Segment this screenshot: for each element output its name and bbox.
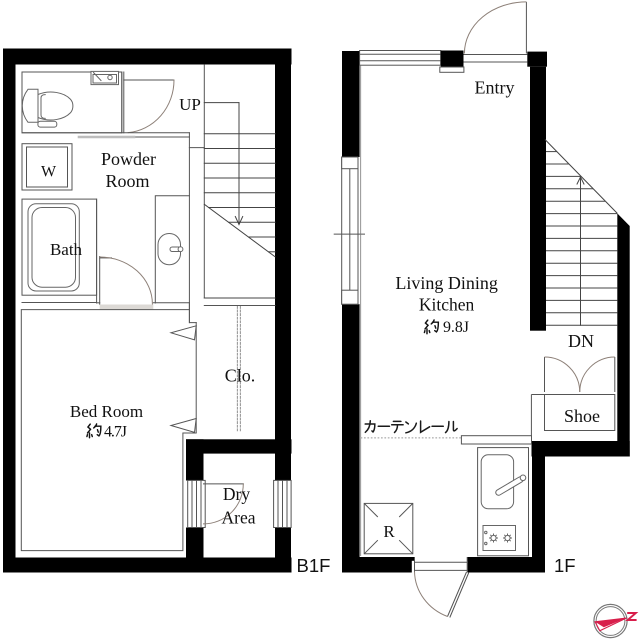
svg-text:B1F: B1F [297, 555, 331, 576]
svg-text:Area: Area [221, 508, 255, 528]
svg-text:Powder: Powder [101, 149, 156, 169]
svg-text:1F: 1F [554, 555, 576, 576]
svg-text:W: W [41, 164, 57, 181]
svg-text:Dry: Dry [223, 484, 250, 504]
svg-text:Bath: Bath [50, 240, 83, 259]
svg-text:Clo.: Clo. [225, 366, 256, 386]
svg-text:Bed Room: Bed Room [70, 402, 143, 421]
svg-text:Kitchen: Kitchen [419, 295, 475, 315]
svg-text:Living Dining: Living Dining [395, 273, 498, 293]
svg-text:4.7J: 4.7J [104, 424, 127, 441]
svg-text:Room: Room [105, 171, 149, 191]
svg-text:R: R [383, 522, 395, 541]
svg-text:Entry: Entry [475, 78, 515, 98]
svg-text:9.8J: 9.8J [443, 319, 469, 336]
svg-text:DN: DN [568, 331, 594, 351]
svg-text:Shoe: Shoe [564, 406, 600, 426]
svg-text:UP: UP [179, 95, 201, 114]
